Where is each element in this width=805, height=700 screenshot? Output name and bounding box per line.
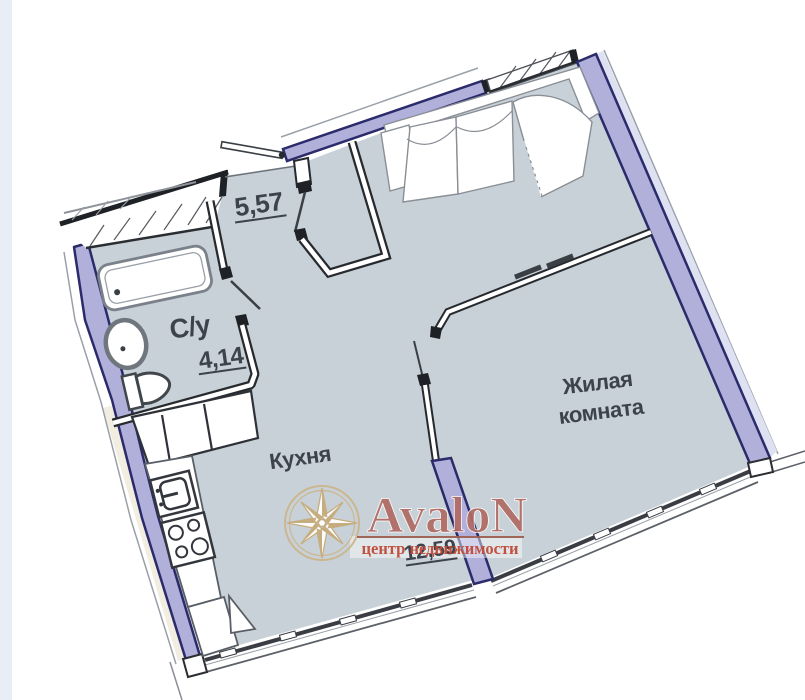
svg-text:С/у: С/у (168, 309, 213, 344)
svg-text:центр недвижимости: центр недвижимости (362, 539, 519, 558)
svg-text:AvaloN: AvaloN (367, 488, 528, 544)
